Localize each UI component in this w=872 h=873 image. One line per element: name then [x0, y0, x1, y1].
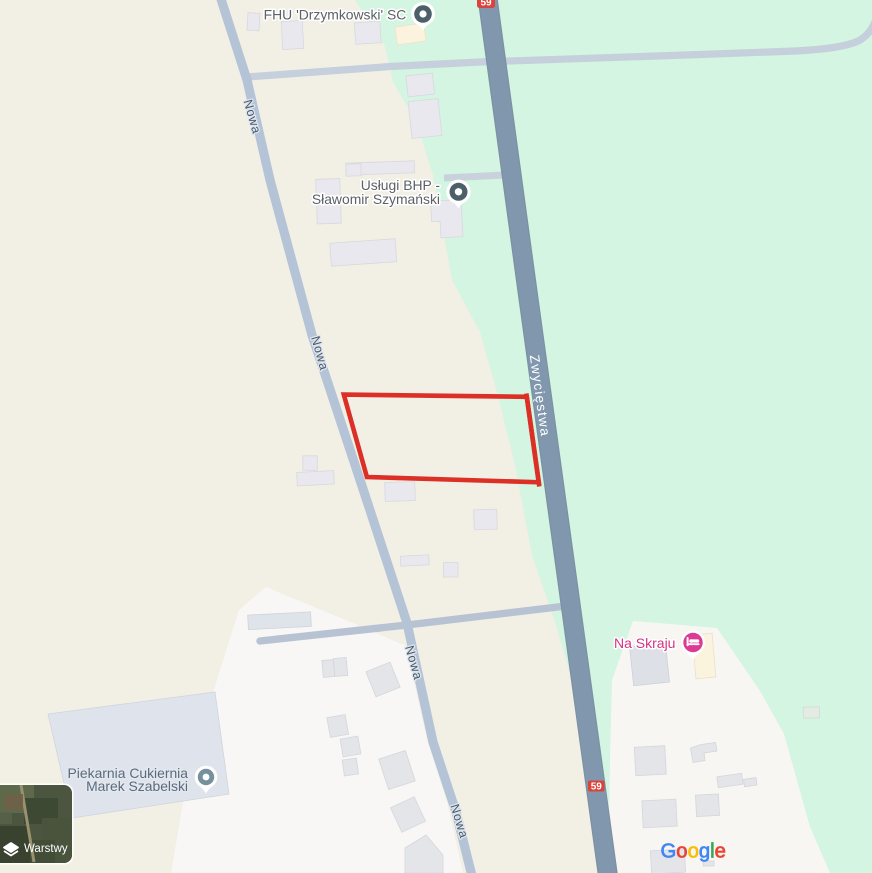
svg-text:Warstwy: Warstwy [24, 843, 68, 855]
svg-text:59: 59 [480, 0, 492, 9]
svg-text:Marek Szabelski: Marek Szabelski [86, 778, 188, 794]
svg-text:Google: Google [661, 841, 726, 863]
svg-text:Na Skraju: Na Skraju [614, 635, 675, 651]
svg-text:59: 59 [591, 782, 603, 793]
svg-text:FHU 'Drzymkowski' SC: FHU 'Drzymkowski' SC [264, 6, 407, 22]
svg-text:Sławomir Szymański: Sławomir Szymański [312, 191, 440, 207]
